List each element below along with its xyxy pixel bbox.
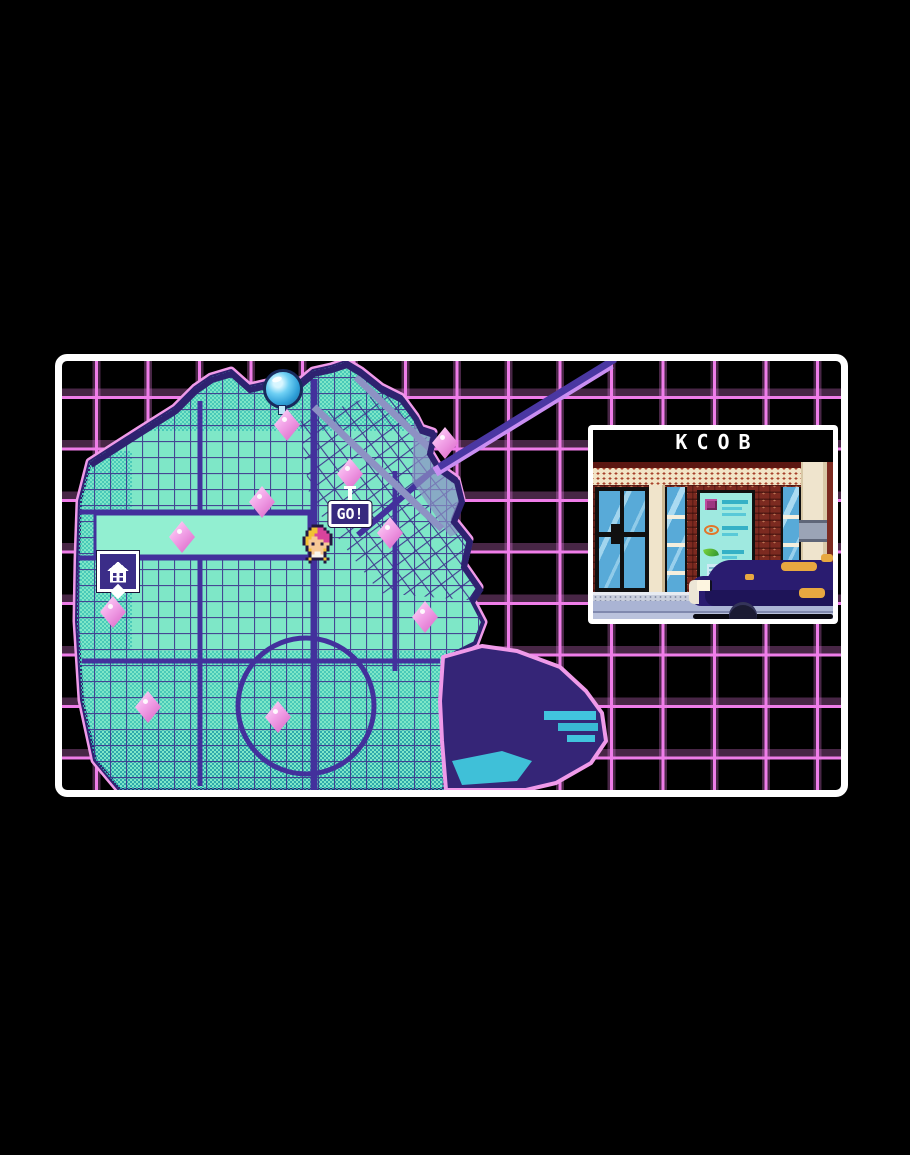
diamond-facet [377, 517, 403, 549]
location-marker[interactable] [412, 601, 438, 633]
objective-orb-marker[interactable] [263, 369, 303, 409]
car-decal [745, 574, 754, 580]
diamond-glint [257, 494, 262, 499]
player-marker[interactable] [303, 525, 336, 564]
diamond-glint [108, 604, 113, 609]
diamond-glint [440, 435, 445, 440]
diamond-facet [135, 691, 161, 723]
map-screen-frame: GO! KCOB [55, 354, 848, 797]
diamond-facet [169, 521, 195, 553]
cube-icon [705, 499, 717, 510]
location-marker[interactable] [432, 427, 458, 459]
diamond-glint [282, 417, 287, 422]
frieze-tiles [593, 468, 833, 485]
diamond-glint [273, 709, 278, 714]
location-preview-panel: KCOB [588, 425, 838, 624]
storefront-scene [593, 462, 833, 619]
marker-stem [348, 487, 352, 502]
car-headlight [697, 580, 712, 591]
diamond-facet [249, 486, 275, 518]
diamond-facet [412, 601, 438, 633]
car-decal [821, 554, 833, 562]
pillar-metal-band [799, 520, 829, 542]
door-push-bar [595, 532, 649, 537]
location-title: KCOB [593, 430, 833, 462]
diamond-facet [265, 701, 291, 733]
car-decal [799, 588, 825, 598]
diamond-facet [274, 409, 300, 441]
door-divider [620, 487, 624, 592]
location-marker[interactable] [265, 701, 291, 733]
diamond-glint [385, 525, 390, 530]
car-shadow [693, 614, 833, 619]
diamond-glint [420, 609, 425, 614]
go-button[interactable]: GO! [328, 501, 371, 527]
destination-marker[interactable]: GO! [337, 458, 363, 490]
diamond-facet [432, 427, 458, 459]
map-screen-interior: GO! KCOB [62, 361, 841, 790]
diamond-glint [177, 529, 182, 534]
home-marker[interactable] [97, 551, 139, 599]
screen-backdrop: GO! KCOB [0, 0, 910, 1155]
location-marker[interactable] [169, 521, 195, 553]
location-marker[interactable] [100, 596, 126, 628]
location-marker[interactable] [249, 486, 275, 518]
location-marker[interactable] [377, 517, 403, 549]
leaf-icon [703, 546, 719, 558]
diamond-glint [143, 699, 148, 704]
storefront-window [665, 487, 687, 592]
door-trim [649, 485, 665, 595]
orb-glint [271, 376, 282, 384]
location-marker[interactable] [135, 691, 161, 723]
door-handle [611, 524, 620, 544]
player-avatar [303, 525, 336, 564]
car-decal [781, 562, 817, 571]
diamond-glint [345, 466, 350, 471]
location-marker[interactable] [274, 409, 300, 441]
diamond-facet [100, 596, 126, 628]
